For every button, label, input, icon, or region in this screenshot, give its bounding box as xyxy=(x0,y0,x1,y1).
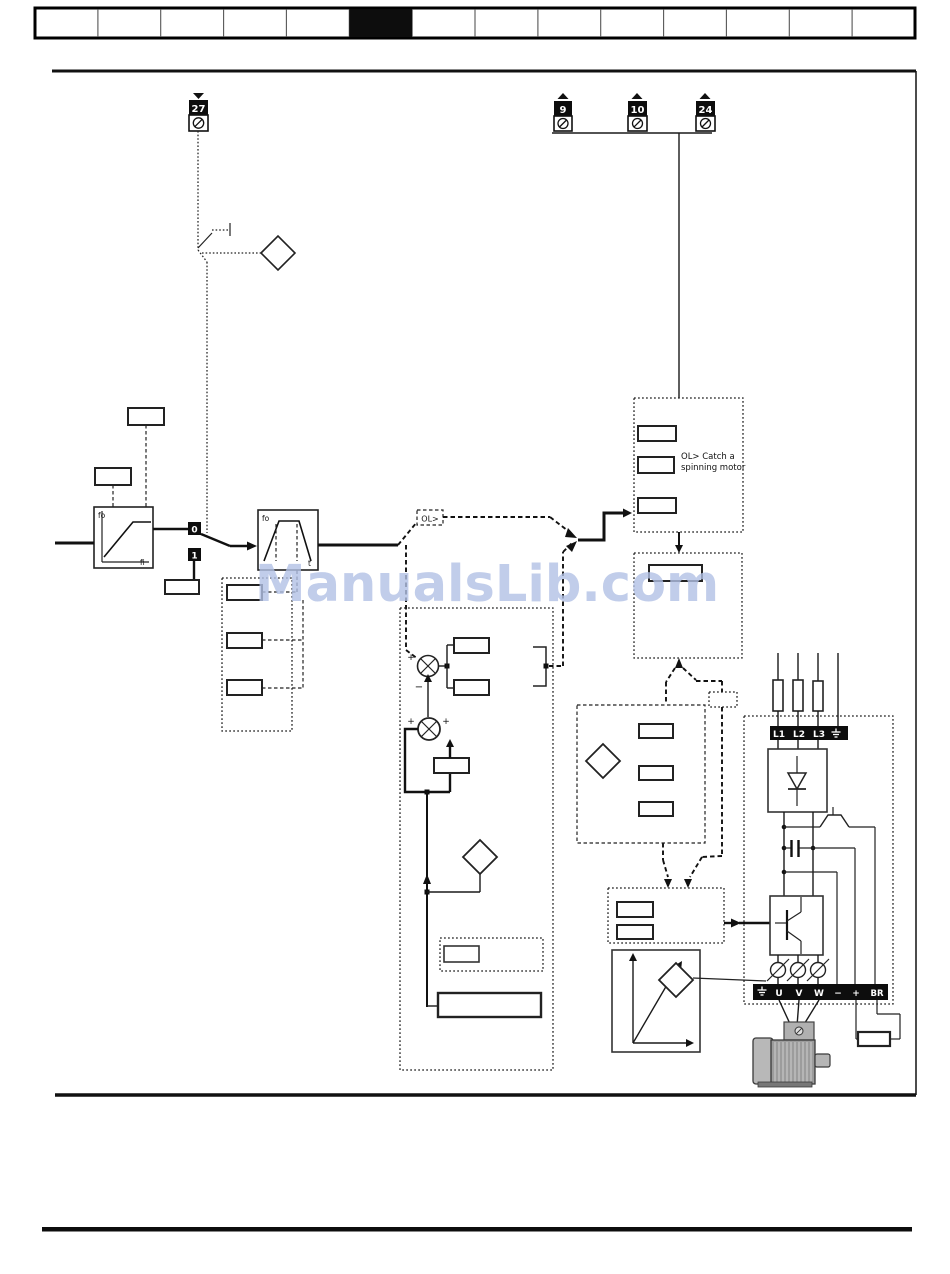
reference-selector-switch: 0 1 xyxy=(165,522,257,594)
arrow-icon xyxy=(565,528,577,538)
decision-diamond xyxy=(261,236,295,270)
arrow-right-icon xyxy=(623,509,632,518)
voltage-mode-dashed-net xyxy=(663,658,737,888)
parameter-box xyxy=(454,680,489,695)
terminal-27-control-wire xyxy=(198,131,295,533)
terminal-label-u: U xyxy=(775,989,782,999)
parameter-box xyxy=(434,758,469,773)
input-terminal-bar: L1 L2 L3 xyxy=(770,726,848,740)
decision-diamond xyxy=(463,840,497,874)
sum-plus-sign: + xyxy=(407,653,415,663)
arrow-up-icon xyxy=(558,93,569,99)
decision-diamond xyxy=(586,744,620,778)
arrow-up-icon xyxy=(675,658,683,668)
motor-body xyxy=(771,1040,815,1084)
arrow-icon xyxy=(566,541,577,552)
arrow-down-icon xyxy=(664,879,672,888)
terminal-9: 9 xyxy=(554,93,572,131)
terminal-number: 27 xyxy=(192,104,206,115)
block-caption-line2: spinning motor xyxy=(681,463,746,473)
voltage-mode-box xyxy=(577,705,705,843)
arrow-up-icon xyxy=(446,739,454,747)
resistor xyxy=(858,1032,890,1046)
motor-endbell xyxy=(753,1038,773,1084)
parameter-box-small xyxy=(709,692,737,707)
braking-resistor xyxy=(856,1000,900,1046)
arrow-down-icon xyxy=(684,879,692,888)
parameter-box xyxy=(454,638,489,653)
arrow-up-icon xyxy=(700,93,711,99)
terminal-label-plus: + xyxy=(852,989,860,999)
fuse xyxy=(813,681,823,711)
switch-position-0: 0 xyxy=(191,526,197,536)
feedback-riser xyxy=(423,792,431,1007)
summing-junction-1: + − xyxy=(407,653,438,693)
output-terminal-bar: U V W − + BR xyxy=(753,984,888,1000)
switch-arm xyxy=(201,534,230,546)
drive-logic-diagram: 27 9 10 xyxy=(0,0,950,1274)
arrow-right-icon xyxy=(247,542,257,551)
watermark: ManualsLib.com xyxy=(255,555,719,614)
current-control-box: + − + + xyxy=(400,608,553,1070)
terminal-number: 10 xyxy=(631,105,645,116)
terminal-label-br: BR xyxy=(870,989,883,999)
feedback-parameter-box xyxy=(440,938,543,971)
fuse xyxy=(773,680,783,711)
terminal-number: 24 xyxy=(699,105,713,116)
slip-comp-loop xyxy=(405,729,469,795)
terminal-10: 10 xyxy=(628,93,647,131)
terminal-label-l2: L2 xyxy=(793,730,805,740)
y-axis-label: fo xyxy=(262,514,270,523)
wide-parameter-box xyxy=(438,993,541,1017)
parameter-box-c xyxy=(165,580,199,594)
block-caption-line1: OL> Catch a xyxy=(681,452,735,462)
supply-section xyxy=(773,653,838,726)
switch-contact xyxy=(198,233,212,248)
manual-page: 27 9 10 xyxy=(0,0,950,1274)
output-sensors xyxy=(767,955,829,984)
catch-spinning-motor-block: OL> Catch a spinning motor xyxy=(634,398,746,532)
switch-position-1: 1 xyxy=(191,552,197,562)
sum-plus-sign: + xyxy=(442,717,450,727)
footer-rule xyxy=(42,1227,912,1232)
terminal-label-minus: − xyxy=(834,989,842,999)
ol-tag: OL> xyxy=(421,515,438,524)
min-max-speed-block: fo fi xyxy=(94,507,153,568)
parameter-box-a xyxy=(128,408,164,522)
arrow-down-icon xyxy=(675,545,683,553)
feedback-tap-wire xyxy=(693,978,766,981)
terminal-label-w: W xyxy=(814,989,824,999)
reference-to-catch-wire xyxy=(578,509,632,541)
terminal-label-v: V xyxy=(796,989,803,999)
catch-output-arrow xyxy=(675,532,683,553)
sum-minus-sign: − xyxy=(415,682,423,693)
terminal-number: 9 xyxy=(560,105,567,116)
output-bracket xyxy=(533,647,549,686)
vector-box xyxy=(612,950,700,1052)
fuse xyxy=(793,680,803,711)
rectifier xyxy=(768,740,827,812)
active-tab[interactable] xyxy=(349,9,412,37)
arrow-down-icon xyxy=(193,93,204,99)
inverter xyxy=(770,896,823,955)
arrow-up-icon xyxy=(632,93,643,99)
arrow-up-icon xyxy=(423,874,431,884)
motor-base xyxy=(758,1082,812,1087)
terminal-27: 27 xyxy=(189,93,208,131)
terminal-24: 24 xyxy=(696,93,715,131)
header-tab-strip xyxy=(35,8,915,38)
terminal-label-l1: L1 xyxy=(773,730,785,740)
terminal-bus-wire xyxy=(552,133,712,398)
motor-shaft xyxy=(815,1054,830,1067)
terminal-label-l3: L3 xyxy=(813,730,825,740)
motor xyxy=(753,1000,830,1087)
sum-plus-sign: + xyxy=(407,717,415,727)
torque-to-inverter-wire xyxy=(724,919,770,928)
torque-block xyxy=(608,888,724,943)
